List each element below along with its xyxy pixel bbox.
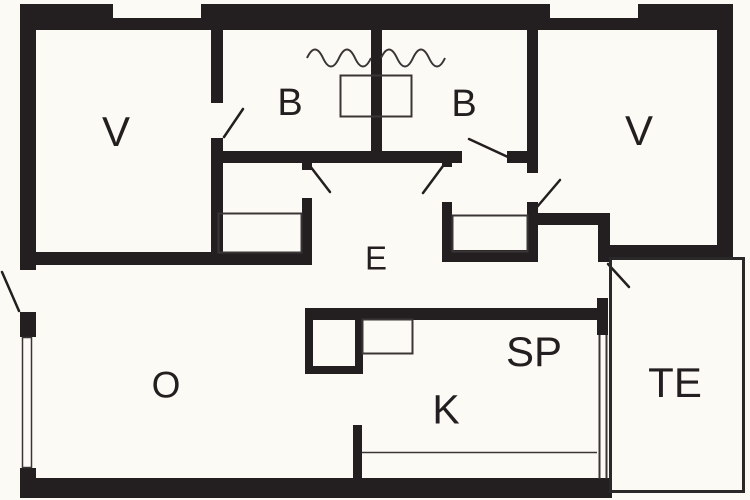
room-label-bedroom-left: V [102, 111, 130, 153]
wavy-line-right [381, 50, 445, 67]
closet-right-outline [453, 216, 528, 252]
window-top-right [550, 4, 638, 18]
wall-living-north [20, 252, 312, 265]
wall-terrace-window-stub [597, 298, 608, 335]
wall-exterior-right [717, 4, 733, 258]
door-hall-west [310, 166, 330, 192]
windows [20, 4, 638, 479]
floor-plan: V B B V E O SP K TE [0, 0, 750, 500]
door-bedroomR [537, 180, 560, 207]
wall-kitchen-west-stub [353, 425, 362, 490]
closet-left-outline [219, 214, 302, 253]
room-label-kitchen: K [432, 390, 459, 431]
wall-exterior-left-middle [20, 312, 36, 337]
room-label-living-room: O [152, 367, 181, 404]
wall-exterior-left-upper [20, 4, 36, 270]
wall-bathL-south [211, 151, 382, 163]
wall-exterior-bottom [20, 478, 612, 498]
wall-bedroomR-south-east [598, 245, 733, 258]
room-label-terrace: TE [648, 362, 702, 404]
door-bathR [469, 139, 510, 158]
room-label-hall: E [365, 242, 387, 275]
wall-between-baths [371, 30, 382, 161]
room-label-dining: SP [506, 331, 562, 373]
door-living-exterior [2, 272, 19, 311]
wavy-line-left [307, 50, 371, 67]
kitchen-counter-outline [363, 320, 413, 354]
wall-bathR-south-west [371, 151, 462, 163]
room-label-bath-left: B [277, 84, 302, 122]
wall-bathR-south-east [507, 151, 538, 163]
window-top-left [113, 4, 201, 18]
room-label-bath-right: B [451, 85, 476, 123]
wall-bedroomL-bathL-upper [211, 30, 223, 103]
door-bedroomL-to-bathL [224, 109, 243, 137]
door-hall-east [423, 166, 443, 193]
kitchen-closet-left-wall [305, 308, 313, 374]
kitchen-closet-bottom-wall [305, 366, 363, 374]
wall-kitchen-north [305, 308, 608, 320]
room-label-bedroom-right: V [625, 110, 653, 152]
